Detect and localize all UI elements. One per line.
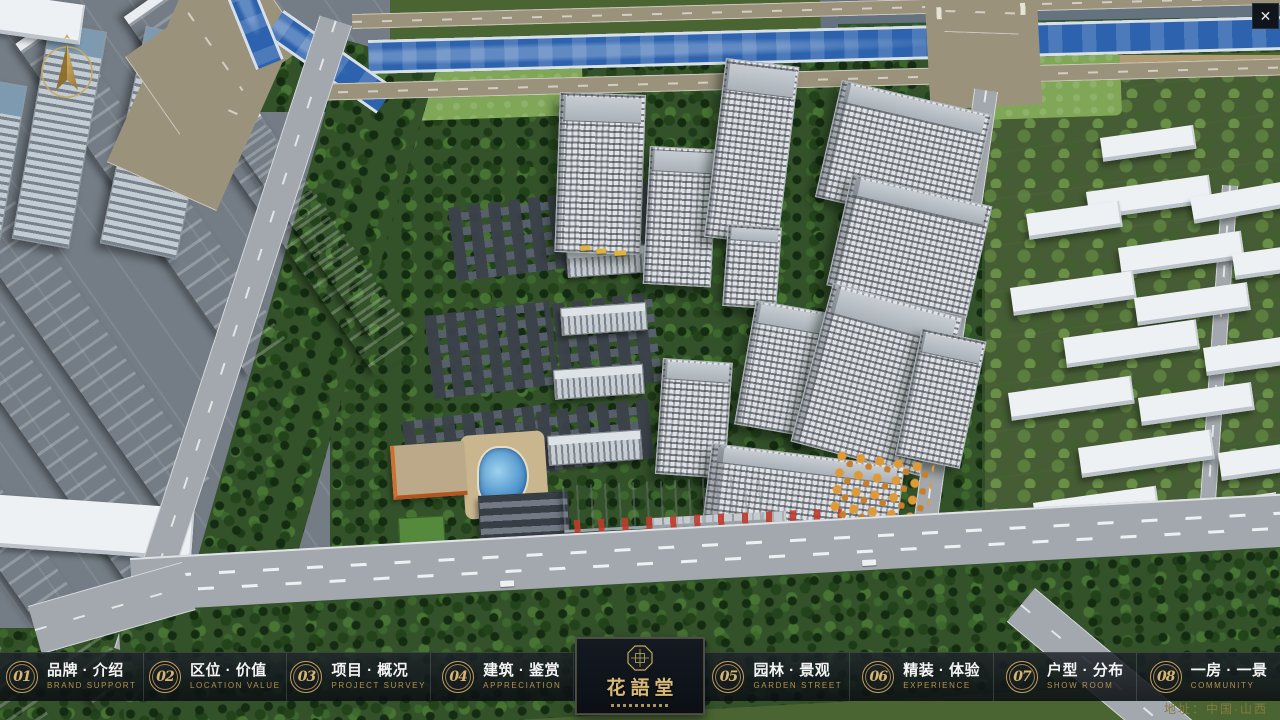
map-ground-tan: [975, 55, 1280, 575]
map-midrise: [547, 429, 643, 465]
map-roadtan: [308, 58, 1280, 101]
map-greenroof: [398, 516, 446, 550]
nav-item-number: 08: [1157, 669, 1174, 685]
map-wslab: [1063, 319, 1200, 367]
nav-item-label-zh: 一房 · 一景: [1191, 663, 1268, 680]
map-roadgray: [909, 89, 998, 558]
map-cityslab: [0, 300, 184, 606]
nav-item-label-en: COMMUNITY: [1191, 682, 1268, 691]
map-villas: [536, 398, 654, 471]
map-midrise: [566, 244, 648, 278]
number-badge-icon: 08: [1150, 661, 1182, 693]
close-button[interactable]: ✕: [1252, 3, 1279, 29]
number-badge-icon: 05: [712, 661, 744, 693]
map-citytower: [100, 26, 222, 259]
map-river: [368, 16, 1280, 74]
number-badge-icon: 02: [149, 661, 181, 693]
nav-item-label-zh: 项目 · 概况: [331, 663, 426, 680]
number-badge-icon: 06: [862, 661, 894, 693]
compass-icon: [38, 30, 96, 104]
map-tower: [734, 300, 837, 438]
map-wslab: [1100, 125, 1196, 162]
map-tower: [554, 92, 646, 255]
map-car-yellow: [580, 245, 590, 251]
map-trees: [205, 36, 345, 112]
map-tower: [643, 146, 718, 287]
nav-item-location[interactable]: 02 区位 · 价值LOCATION VALUE: [144, 653, 288, 701]
map-trees: [186, 40, 437, 624]
map-wslab: [1008, 376, 1135, 421]
map-wslab: [1033, 486, 1160, 533]
nav-item-architecture[interactable]: 04 建筑 · 鉴赏APPRECIATION: [431, 653, 575, 701]
map-lawn: [382, 59, 584, 122]
map-wslab: [1203, 336, 1280, 375]
nav-item-number: 06: [869, 669, 886, 685]
app-window: ✕ 01 品牌 · 介绍BRAND SUPPORT 02 区位 · 价值LOCA…: [0, 0, 1280, 720]
map-villas: [556, 182, 665, 274]
nav-item-interior[interactable]: 06 精装 · 体验EXPERIENCE: [850, 653, 994, 701]
map-wslab: [1190, 182, 1280, 224]
nav-item-label-en: APPRECIATION: [483, 682, 561, 691]
number-badge-icon: 04: [442, 661, 474, 693]
map-roadtan: [125, 0, 306, 135]
map-tower: [815, 80, 992, 232]
map-wslab: [1138, 382, 1255, 426]
map-roadgray: [1197, 185, 1238, 537]
nav-item-number: 03: [298, 669, 315, 685]
map-canopy: [562, 475, 769, 533]
nav-item-label-en: PROJECT SURVEY: [331, 682, 426, 691]
nav-item-number: 07: [1013, 669, 1030, 685]
logo-tagline: [611, 704, 669, 707]
map-trees: [330, 58, 985, 583]
map-redrow: [574, 508, 842, 533]
nav-item-label-zh: 园林 · 景观: [753, 663, 842, 680]
map-wslab: [1218, 444, 1280, 481]
nav-item-label-zh: 区位 · 价值: [190, 663, 281, 680]
map-tower: [655, 358, 733, 479]
map-midrise: [553, 364, 645, 400]
map-tower: [704, 58, 799, 246]
nav-item-label-en: LOCATION VALUE: [190, 682, 281, 691]
map-darkcircle: [680, 529, 708, 557]
nav-item-project[interactable]: 03 项目 · 概况PROJECT SURVEY: [287, 653, 431, 701]
nav-right-group: 05 园林 · 景观GARDEN STREET 06 精装 · 体验EXPERI…: [706, 653, 1280, 701]
map-river: [266, 10, 395, 114]
project-address: 地址：中国·山西: [1164, 700, 1268, 717]
map-roadtan: [352, 0, 1280, 29]
nav-item-number: 05: [720, 669, 737, 685]
map-river: [224, 0, 284, 70]
map-villas: [552, 292, 662, 394]
map-sand: [460, 430, 550, 520]
map-wslab: [1163, 492, 1280, 538]
project-logo[interactable]: 花語堂: [575, 637, 705, 715]
map-tower: [791, 283, 963, 476]
map-trees: [982, 68, 1280, 558]
map-trees: [838, 16, 1280, 60]
map-wslab: [1010, 271, 1137, 316]
map-cityslab: [0, 128, 210, 512]
map-roadtan: [945, 0, 1020, 35]
nav-item-number: 04: [449, 669, 466, 685]
map-tower: [895, 328, 987, 469]
map-car-white: [862, 559, 876, 566]
nav-item-room-view[interactable]: 08 一房 · 一景COMMUNITY: [1137, 653, 1280, 701]
number-badge-icon: 01: [6, 661, 38, 693]
map-orangetrees: [822, 448, 936, 565]
nav-item-label-en: GARDEN STREET: [753, 682, 842, 691]
map-tower: [699, 443, 904, 570]
map-midrise: [560, 302, 648, 336]
map-wslab: [1086, 175, 1213, 220]
map-villas: [424, 301, 559, 400]
map-cityslab: [124, 0, 420, 377]
map-car-white: [500, 580, 514, 587]
map-ground-gray: [0, 0, 390, 720]
nav-left-group: 01 品牌 · 介绍BRAND SUPPORT 02 区位 · 价值LOCATI…: [0, 653, 574, 701]
map-wslab: [1026, 201, 1123, 240]
map-villas: [448, 194, 574, 282]
nav-item-label-zh: 品牌 · 介绍: [47, 663, 137, 680]
nav-item-brand[interactable]: 01 品牌 · 介绍BRAND SUPPORT: [0, 653, 144, 701]
map-wslab: [0, 494, 194, 560]
map-wslab: [1134, 282, 1251, 326]
map-roadtan: [107, 0, 296, 211]
masterplan-3d-view[interactable]: [0, 0, 1280, 720]
map-roadmain: [130, 492, 1280, 614]
nav-item-label-zh: 户型 · 分布: [1047, 663, 1124, 680]
nav-item-label-zh: 建筑 · 鉴赏: [483, 663, 561, 680]
map-compound: [478, 491, 571, 556]
map-lawn: [985, 53, 1122, 120]
nav-item-label-en: SHOW ROOM: [1047, 682, 1124, 691]
map-plaza-top: [820, 0, 1280, 32]
nav-item-label-zh: 精装 · 体验: [903, 663, 980, 680]
map-roadgray: [114, 15, 352, 658]
nav-item-label-en: BRAND SUPPORT: [47, 682, 137, 691]
map-tower: [826, 174, 992, 317]
map-citytower: [0, 78, 27, 336]
nav-item-number: 02: [156, 669, 173, 685]
map-wslab: [1118, 231, 1245, 276]
map-car-yellow: [614, 250, 626, 256]
map-cityslab: [225, 108, 405, 342]
nav-item-landscape[interactable]: 05 园林 · 景观GARDEN STREET: [706, 653, 850, 701]
map-pool: [477, 446, 529, 508]
number-badge-icon: 07: [1006, 661, 1038, 693]
logo-seal-icon: [627, 645, 653, 671]
map-villas: [402, 404, 557, 490]
map-car-yellow: [596, 248, 606, 254]
logo-title: 花語堂: [601, 673, 678, 700]
number-badge-icon: 03: [290, 661, 322, 693]
nav-item-number: 01: [13, 669, 30, 685]
map-orangebld: [390, 441, 468, 500]
nav-item-label-en: EXPERIENCE: [903, 682, 980, 691]
nav-item-floorplan[interactable]: 07 户型 · 分布SHOW ROOM: [994, 653, 1138, 701]
map-roadgray: [28, 562, 196, 654]
map-bridgetan: [925, 0, 1042, 110]
map-plaza: [652, 511, 788, 560]
map-tower: [722, 224, 782, 310]
map-wslab: [1078, 429, 1215, 477]
map-wslab: [1232, 245, 1280, 279]
